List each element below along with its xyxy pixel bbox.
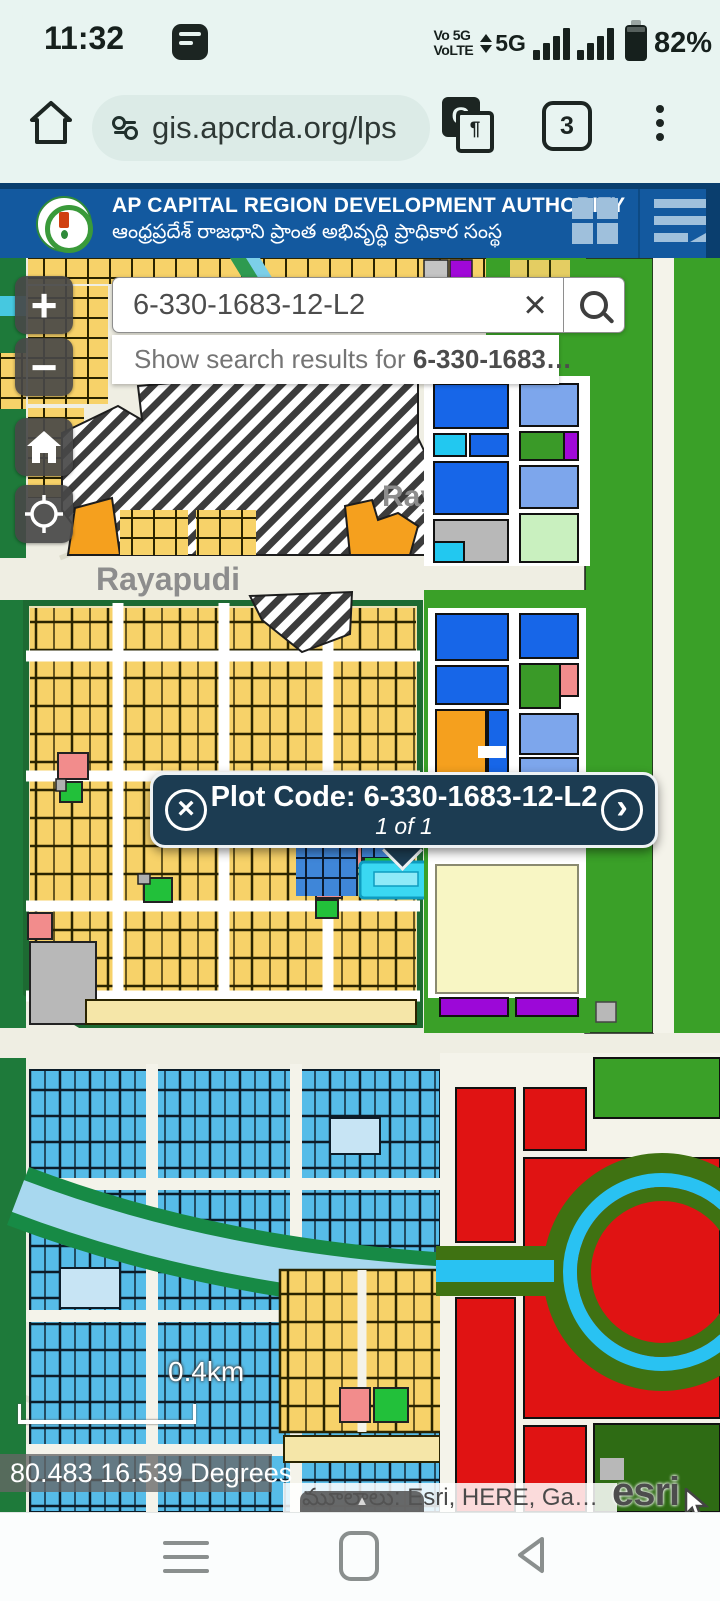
zoom-in-button[interactable]: + <box>15 276 73 334</box>
battery-icon <box>625 25 647 61</box>
search-input[interactable]: 6-330-1683-12-L2 <box>133 289 507 322</box>
my-location-button[interactable] <box>15 485 73 543</box>
translate-page-icon[interactable]: G ¶ <box>442 97 494 153</box>
volte-indicator: Vo 5G VoLTE <box>434 28 474 58</box>
plot-search-box[interactable]: 6-330-1683-12-L2 × <box>112 277 625 333</box>
url-text[interactable]: gis.apcrda.org/lps <box>152 110 397 146</box>
app-subtitle-telugu: ఆంధ్రప్రదేశ్ రాజధాని ప్రాంత అభివృద్ధి ప్… <box>112 221 502 248</box>
signal-bars-sim2-icon <box>577 26 614 60</box>
battery-percent: 82% <box>654 27 712 60</box>
notification-note-icon <box>172 24 208 60</box>
recent-apps-icon[interactable] <box>163 1541 209 1583</box>
zoom-out-button[interactable]: − <box>15 338 73 396</box>
home-nav-icon[interactable] <box>339 1531 379 1581</box>
search-submit-button[interactable] <box>564 278 624 332</box>
legend-menu-icon[interactable] <box>654 199 706 243</box>
browser-menu-icon[interactable] <box>650 99 670 155</box>
popup-title: Plot Code: 6-330-1683-12-L2 <box>207 781 601 813</box>
site-settings-icon[interactable] <box>114 118 136 138</box>
town-label: Rayapudi <box>96 561 240 597</box>
clear-search-icon[interactable]: × <box>507 280 563 330</box>
data-arrows-icon <box>480 34 492 53</box>
esri-logo: esri <box>612 1470 679 1512</box>
status-bar: 11:32 G Vo 5G VoLTE 5G 82% <box>0 0 720 85</box>
popup-close-button[interactable]: × <box>165 789 207 831</box>
url-bar[interactable]: gis.apcrda.org/lps <box>92 95 430 161</box>
browser-toolbar: gis.apcrda.org/lps G ¶ 3 <box>0 85 720 183</box>
attribution-expand-tab[interactable]: ▲ <box>300 1491 424 1512</box>
scale-bar <box>18 1404 196 1424</box>
scale-label: 0.4km <box>168 1356 244 1388</box>
house-icon <box>26 430 62 464</box>
app-header: AP CAPITAL REGION DEVELOPMENT AUTHORITY … <box>0 183 720 258</box>
search-icon <box>580 291 608 319</box>
coordinates-readout: 80.483 16.539 Degrees <box>0 1454 272 1492</box>
clock: 11:32 <box>44 20 124 57</box>
map-viewport[interactable]: Ray Rayapudi <box>0 258 720 1512</box>
android-navigation-bar <box>0 1512 720 1601</box>
notification-translate-icon: G <box>0 0 34 32</box>
back-nav-icon[interactable] <box>512 1533 548 1577</box>
home-icon[interactable] <box>28 99 74 145</box>
apps-grid-icon[interactable] <box>572 198 618 244</box>
home-extent-button[interactable] <box>15 418 73 476</box>
network-type: 5G <box>495 30 526 57</box>
plot-info-popup: × Plot Code: 6-330-1683-12-L2 1 of 1 › <box>150 772 658 848</box>
popup-next-button[interactable]: › <box>601 789 643 831</box>
ap-government-logo <box>36 196 92 252</box>
mouse-cursor-icon <box>682 1488 712 1512</box>
popup-pager: 1 of 1 <box>207 813 601 839</box>
tab-switcher-button[interactable]: 3 <box>542 101 592 151</box>
crosshair-icon <box>24 494 64 534</box>
app-title: AP CAPITAL REGION DEVELOPMENT AUTHORITY <box>112 194 625 218</box>
signal-bars-sim1-icon <box>533 26 570 60</box>
search-suggestion[interactable]: Show search results for 6-330-1683… <box>112 335 559 384</box>
zoning-map[interactable]: Ray Rayapudi <box>0 258 720 1512</box>
